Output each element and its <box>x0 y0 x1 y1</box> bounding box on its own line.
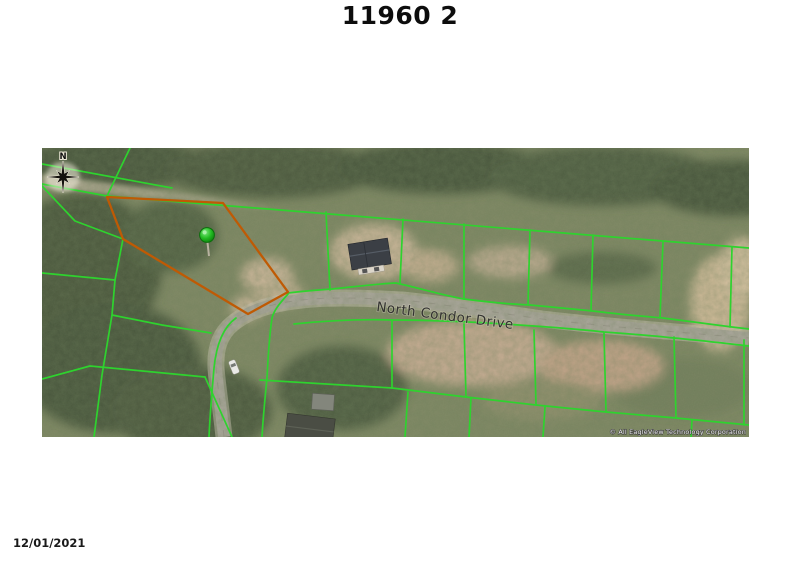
grain-texture <box>42 148 749 437</box>
imagery-copyright: © All EagleView Technology Corporation <box>610 428 746 436</box>
report-page: 11960 2 <box>0 0 800 565</box>
aerial-map-canvas: N North Condor Drive © All EagleView Tec… <box>42 148 749 437</box>
page-title: 11960 2 <box>0 1 800 30</box>
aerial-parcel-map: N North Condor Drive © All EagleView Tec… <box>42 148 749 437</box>
compass-north-label: N <box>59 152 66 162</box>
shed-south <box>311 393 334 410</box>
report-date: 12/01/2021 <box>13 536 85 550</box>
